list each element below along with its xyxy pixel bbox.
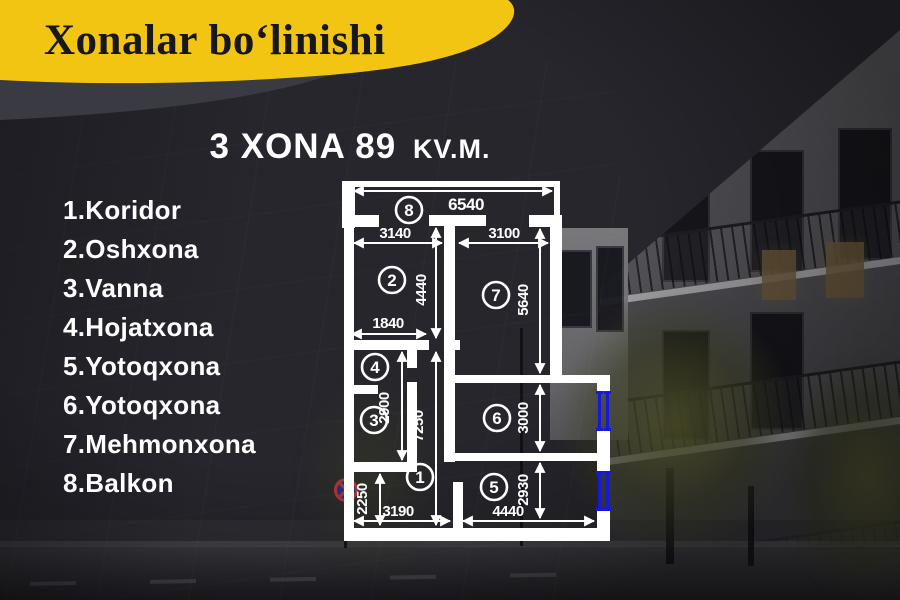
floor-plan: 6540 3140 3100 4440 5640 1840 2900 7250 … — [338, 170, 618, 542]
dim-bedroom6-height: 3000 — [515, 402, 532, 434]
room-marker-7: 7 — [483, 282, 509, 308]
banner-title: Xonalar boʻlinishi — [44, 16, 504, 65]
room-number: 1 — [415, 468, 424, 487]
room-list-item: 4.Hojatxona — [63, 314, 256, 341]
dim-niche-width: 1840 — [372, 315, 404, 332]
room-number: 3 — [369, 411, 378, 430]
room-number: 8 — [404, 201, 413, 220]
room-marker-2: 2 — [379, 267, 405, 293]
room-number: 2 — [387, 271, 396, 290]
room-marker-5: 5 — [481, 474, 507, 500]
dim-corridor-height: 7250 — [410, 410, 427, 442]
room-number: 4 — [370, 358, 380, 377]
room-list-item: 3.Vanna — [63, 275, 256, 302]
room-list-item: 5.Yotoqxona — [63, 353, 256, 380]
dim-living-width: 3100 — [488, 225, 520, 242]
room-list: 1.Koridor 2.Oshxona 3.Vanna 4.Hojatxona … — [63, 197, 256, 509]
dim-balcony-width: 6540 — [448, 195, 484, 214]
room-number: 5 — [489, 478, 498, 497]
room-list-item: 8.Balkon — [63, 470, 256, 497]
room-marker-8: 8 — [396, 197, 422, 223]
room-list-item: 7.Mehmonxona — [63, 431, 256, 458]
room-number: 7 — [491, 286, 500, 305]
page-title-unit: KV.M. — [413, 134, 491, 164]
dim-bedroom5-height: 2930 — [515, 474, 532, 506]
room-number: 6 — [492, 409, 501, 428]
page-title: 3 XONA 89 KV.M. — [185, 127, 515, 167]
room-marker-4: 4 — [362, 354, 388, 380]
room-marker-1: 1 — [407, 464, 433, 490]
dim-kitchen-width: 3140 — [379, 225, 411, 242]
dim-hall-width: 3190 — [382, 503, 414, 520]
poster: Xonalar boʻlinishi 3 XONA 89 KV.M. 1.Kor… — [0, 0, 900, 600]
room-list-item: 2.Oshxona — [63, 236, 256, 263]
dim-kitchen-height: 4440 — [413, 274, 430, 306]
dim-entry-height: 2250 — [354, 483, 371, 515]
room-list-item: 1.Koridor — [63, 197, 256, 224]
room-marker-6: 6 — [484, 405, 510, 431]
page-title-main: 3 XONA 89 — [210, 127, 397, 166]
dim-living-height: 5640 — [515, 284, 532, 316]
room-list-item: 6.Yotoqxona — [63, 392, 256, 419]
